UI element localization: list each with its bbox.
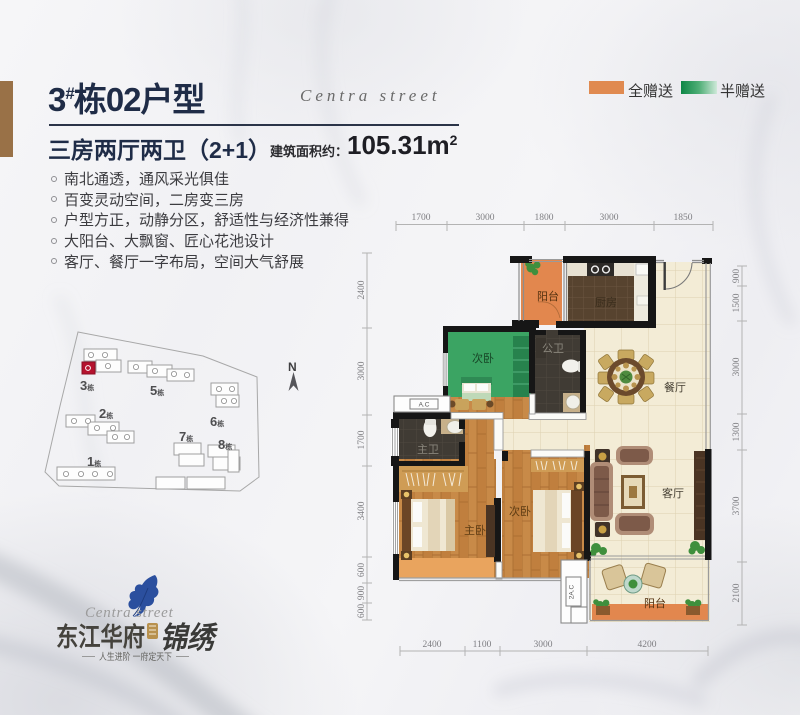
svg-text:Centra street: Centra street — [85, 605, 174, 621]
svg-text:锦绣: 锦绣 — [160, 622, 218, 655]
svg-text:人生进阶 一府定天下: 人生进阶 一府定天下 — [99, 651, 172, 663]
svg-text:东江华府: 东江华府 — [56, 622, 145, 652]
